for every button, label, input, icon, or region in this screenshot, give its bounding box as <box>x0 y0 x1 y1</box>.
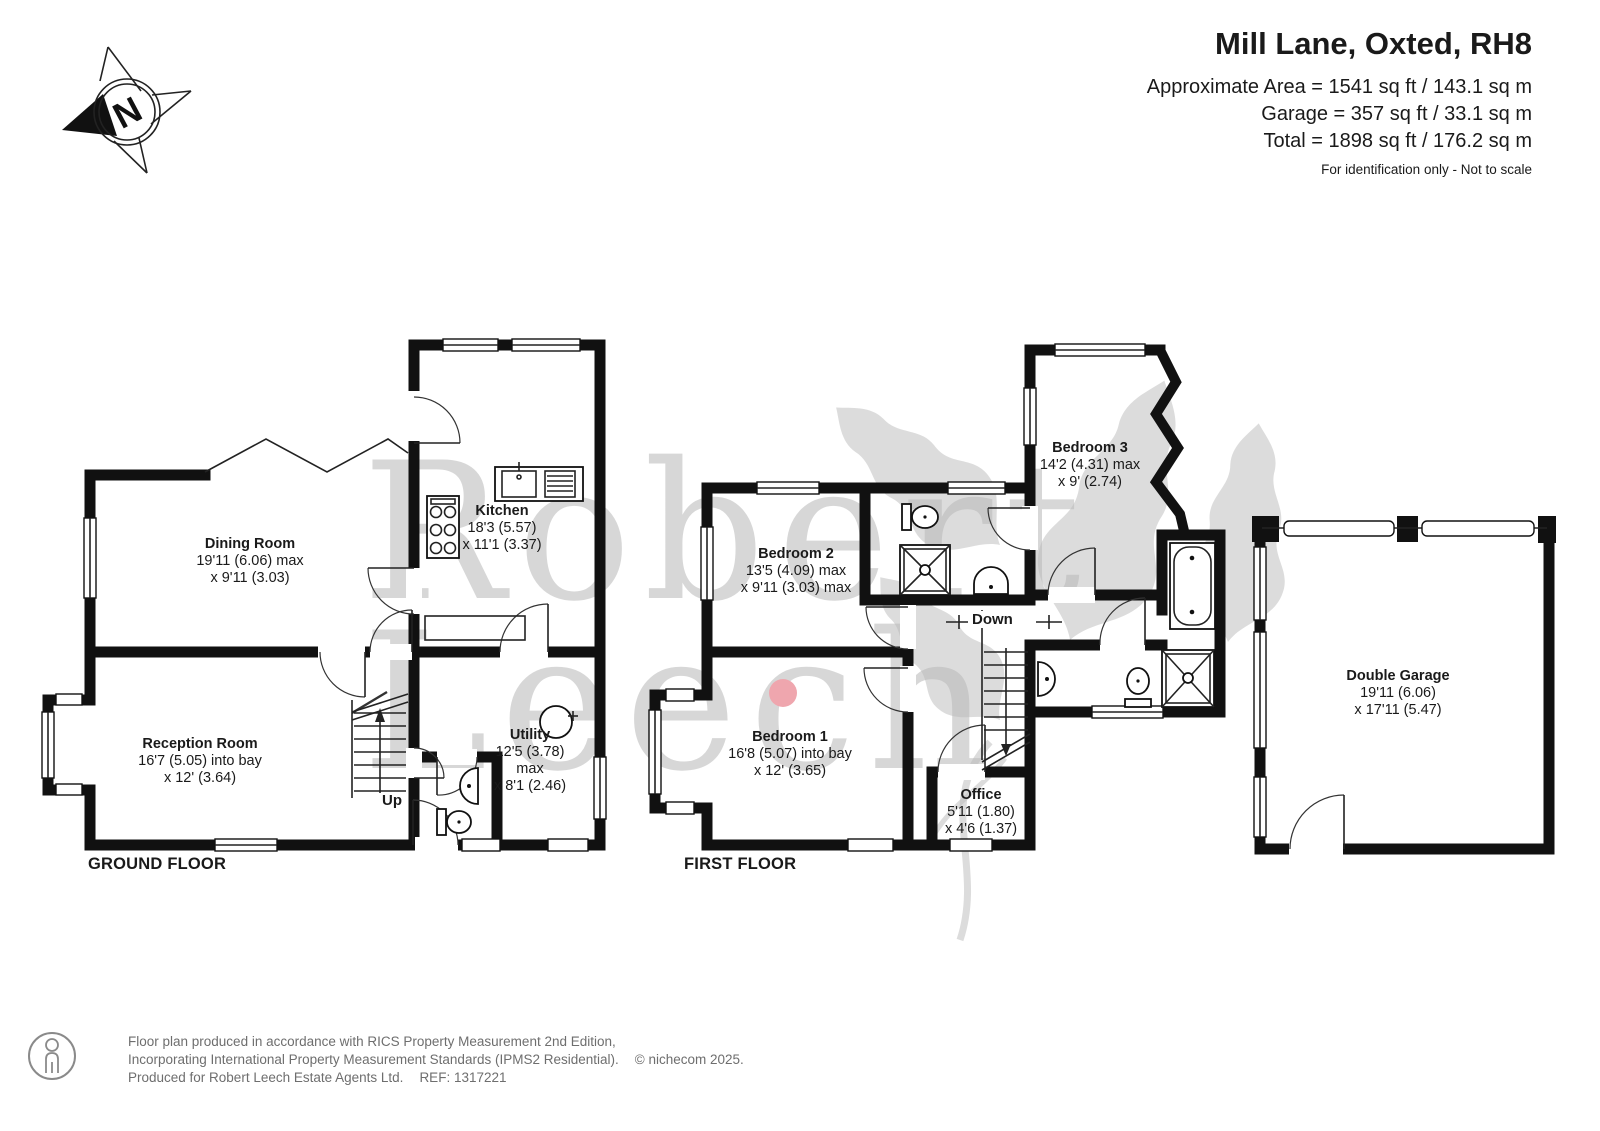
garage-door-panel <box>1422 521 1534 536</box>
reference-number: REF: 1317221 <box>403 1070 506 1085</box>
photo-marker-dot <box>769 679 797 707</box>
stairs-down-label: Down <box>968 611 1017 628</box>
ensuite-shower-icon <box>900 545 950 595</box>
floorplan-page: Robert Leech N <box>0 0 1600 1131</box>
footer-disclaimer: Floor plan produced in accordance with R… <box>128 1033 744 1087</box>
stairs-up-label: Up <box>382 792 402 809</box>
stove-icon <box>427 496 459 558</box>
room-label-bedroom2: Bedroom 2 13'5 (4.09) max x 9'11 (3.03) … <box>741 546 852 597</box>
room-label-office: Office 5'11 (1.80) x 4'6 (1.37) <box>945 787 1017 838</box>
cloakroom-toilet-icon <box>437 809 471 835</box>
garage-door-panel <box>1284 521 1394 536</box>
accessibility-person-icon <box>29 1033 75 1079</box>
bathroom-shower-icon <box>1162 650 1214 707</box>
footer-line-2: Incorporating International Property Mea… <box>128 1051 744 1069</box>
bathroom-toilet-icon <box>1125 668 1151 707</box>
room-label-utility: Utility 12'5 (3.78) max x 8'1 (2.46) <box>494 727 566 795</box>
ground-floor-label: GROUND FLOOR <box>88 855 226 874</box>
bathroom-basin-icon <box>1038 662 1055 696</box>
room-label-bedroom3: Bedroom 3 14'2 (4.31) max x 9' (2.74) <box>1040 440 1140 491</box>
room-label-bedroom1: Bedroom 1 16'8 (5.07) into bay x 12' (3.… <box>728 729 852 780</box>
copyright-note: © nichecom 2025. <box>619 1052 744 1067</box>
compass-icon: N <box>62 47 191 173</box>
first-floor-label: FIRST FLOOR <box>684 855 796 874</box>
room-label-kitchen: Kitchen 18'3 (5.57) x 11'1 (3.37) <box>462 503 541 554</box>
total-area: Total = 1898 sq ft / 176.2 sq m <box>1147 128 1532 155</box>
page-title: Mill Lane, Oxted, RH8 <box>1215 26 1532 62</box>
garage-area: Garage = 357 sq ft / 33.1 sq m <box>1147 101 1532 128</box>
ensuite-toilet-icon <box>902 504 938 530</box>
ensuite-basin-icon <box>974 567 1008 594</box>
bath-icon <box>1170 543 1215 629</box>
room-label-reception: Reception Room 16'7 (5.05) into bay x 12… <box>138 736 262 787</box>
footer-line-1: Floor plan produced in accordance with R… <box>128 1033 744 1051</box>
room-label-double-garage: Double Garage 19'11 (6.06) x 17'11 (5.47… <box>1346 668 1449 719</box>
footer-line-3: Produced for Robert Leech Estate Agents … <box>128 1069 744 1087</box>
identification-note: For identification only - Not to scale <box>1321 162 1532 177</box>
room-label-dining: Dining Room 19'11 (6.06) max x 9'11 (3.0… <box>196 536 303 587</box>
approximate-area: Approximate Area = 1541 sq ft / 143.1 sq… <box>1147 74 1532 101</box>
kitchen-sink-icon <box>495 462 583 501</box>
area-summary: Approximate Area = 1541 sq ft / 143.1 sq… <box>1147 74 1532 155</box>
